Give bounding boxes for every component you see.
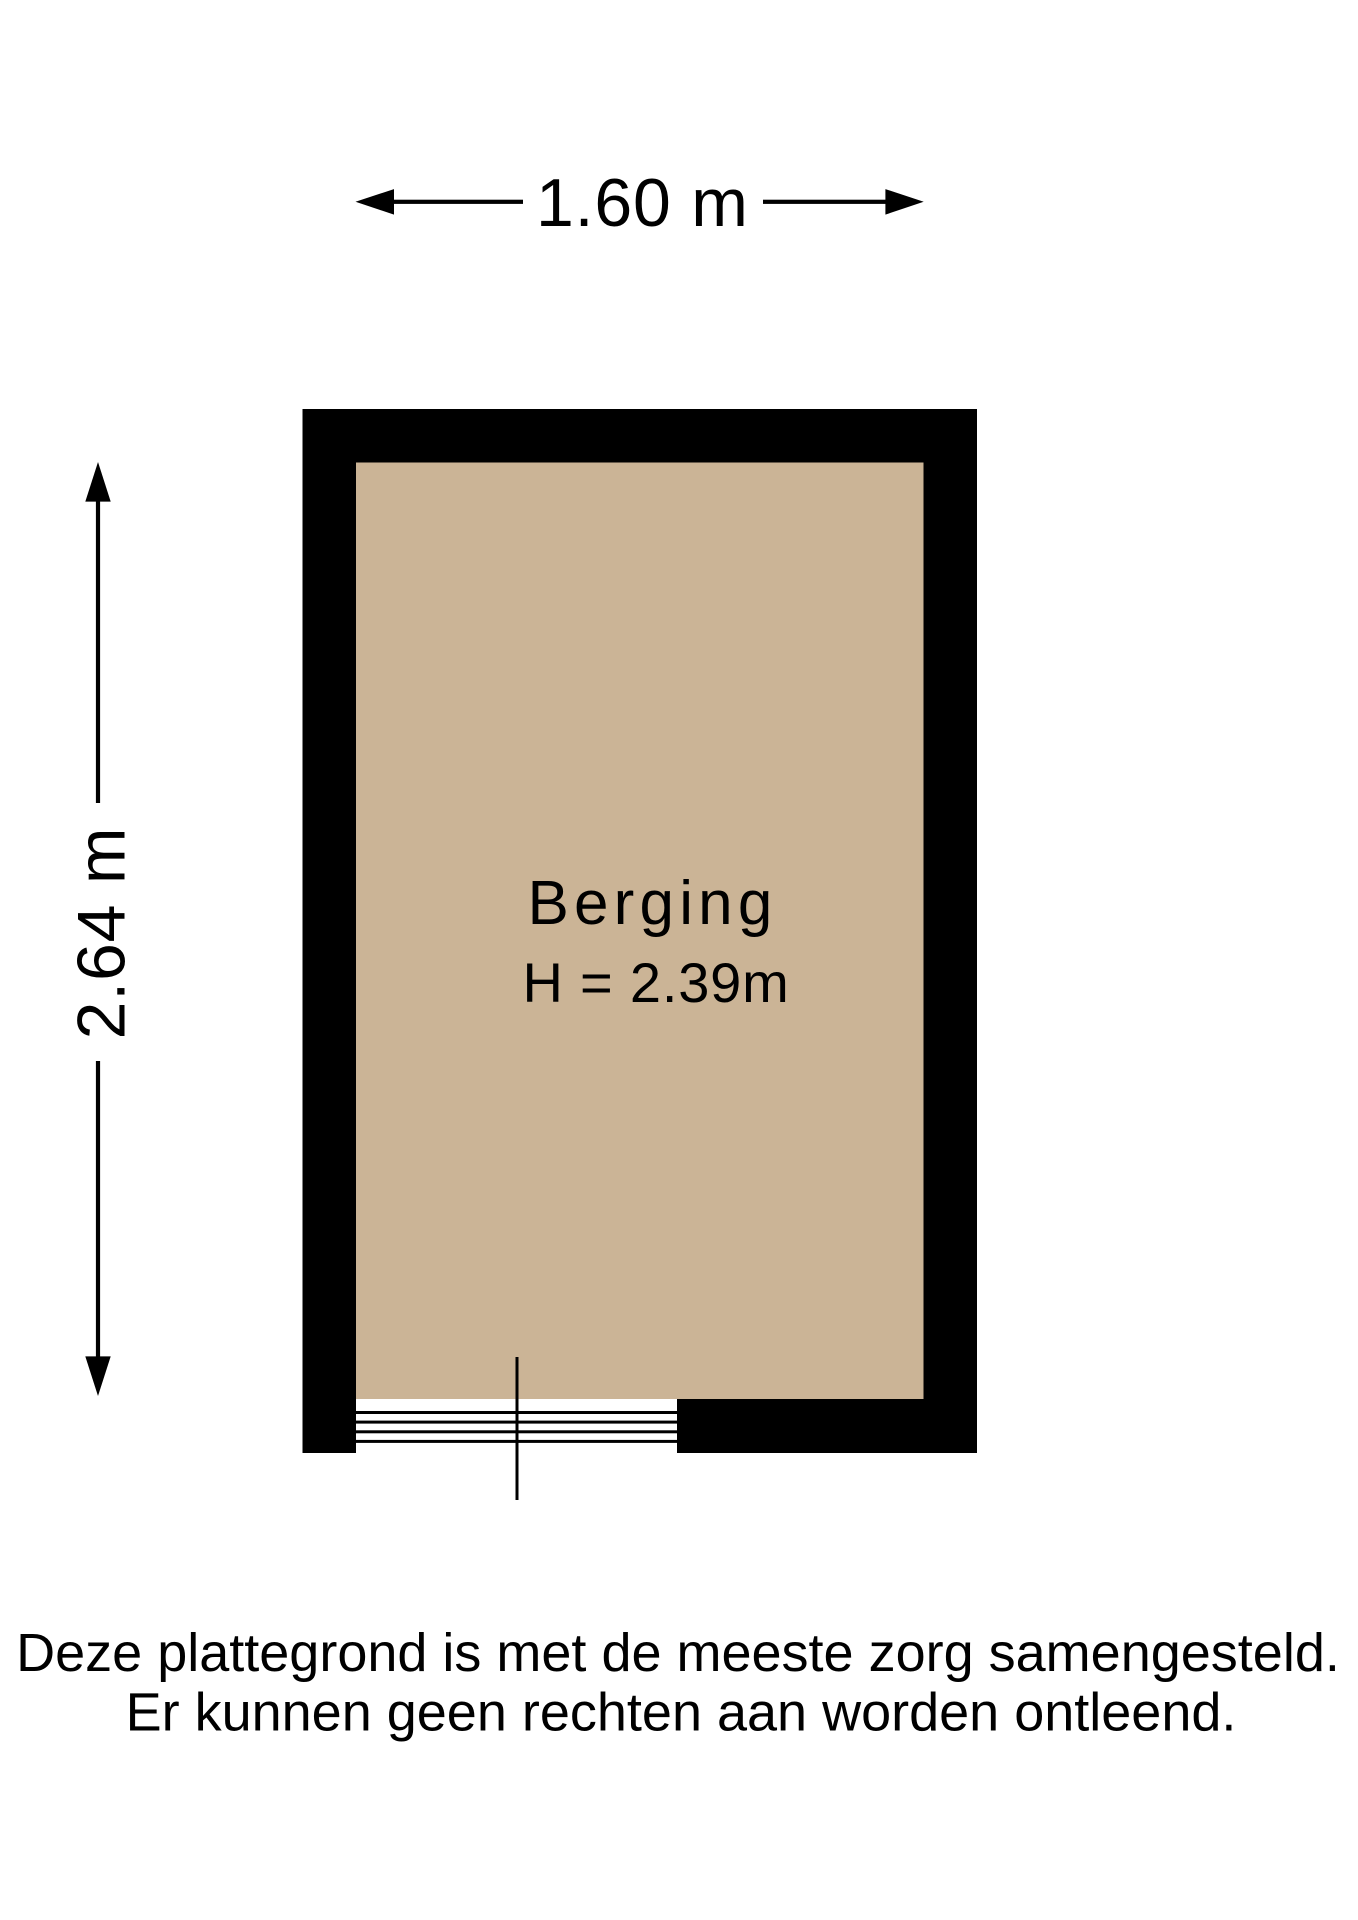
svg-text:H = 2.39m: H = 2.39m [522,951,789,1014]
svg-text:2.64 m: 2.64 m [64,827,140,1040]
svg-text:1.60 m: 1.60 m [536,165,749,241]
svg-text:Deze plattegrond is met de mee: Deze plattegrond is met de meeste zorg s… [16,1623,1340,1683]
svg-text:Berging: Berging [527,869,777,938]
svg-text:Er kunnen geen rechten aan wor: Er kunnen geen rechten aan worden ontlee… [126,1683,1237,1743]
